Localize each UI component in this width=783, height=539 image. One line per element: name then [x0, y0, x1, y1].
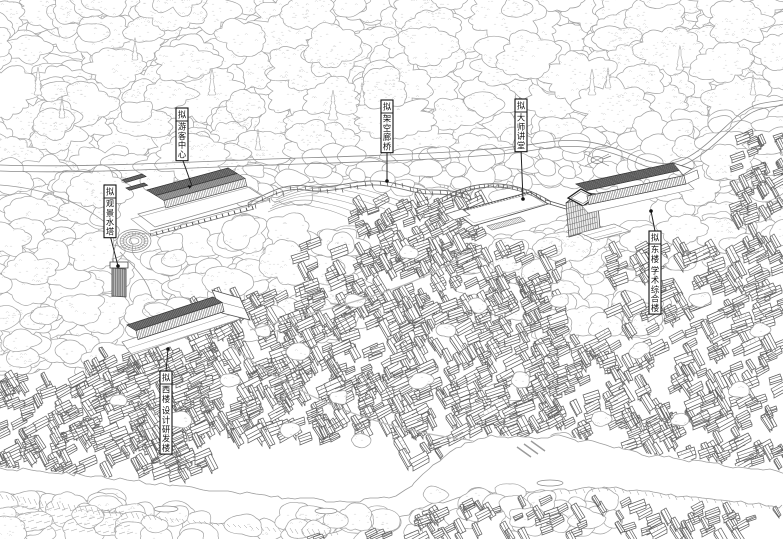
svg-text:拟: 拟 [383, 102, 392, 112]
svg-text:楼: 楼 [162, 394, 170, 404]
svg-text:拟: 拟 [162, 373, 171, 383]
svg-text:塔: 塔 [106, 227, 115, 237]
svg-text:楼: 楼 [651, 254, 659, 264]
svg-text:拟: 拟 [651, 233, 660, 243]
svg-text:拟: 拟 [517, 101, 526, 111]
svg-text:楼: 楼 [651, 303, 659, 313]
svg-text:心: 心 [178, 150, 187, 160]
svg-text:堂: 堂 [517, 141, 525, 151]
svg-text:桥: 桥 [383, 142, 392, 152]
svg-text:拟: 拟 [178, 110, 187, 120]
svg-text:拟: 拟 [106, 187, 115, 197]
svg-text:楼: 楼 [162, 443, 170, 453]
